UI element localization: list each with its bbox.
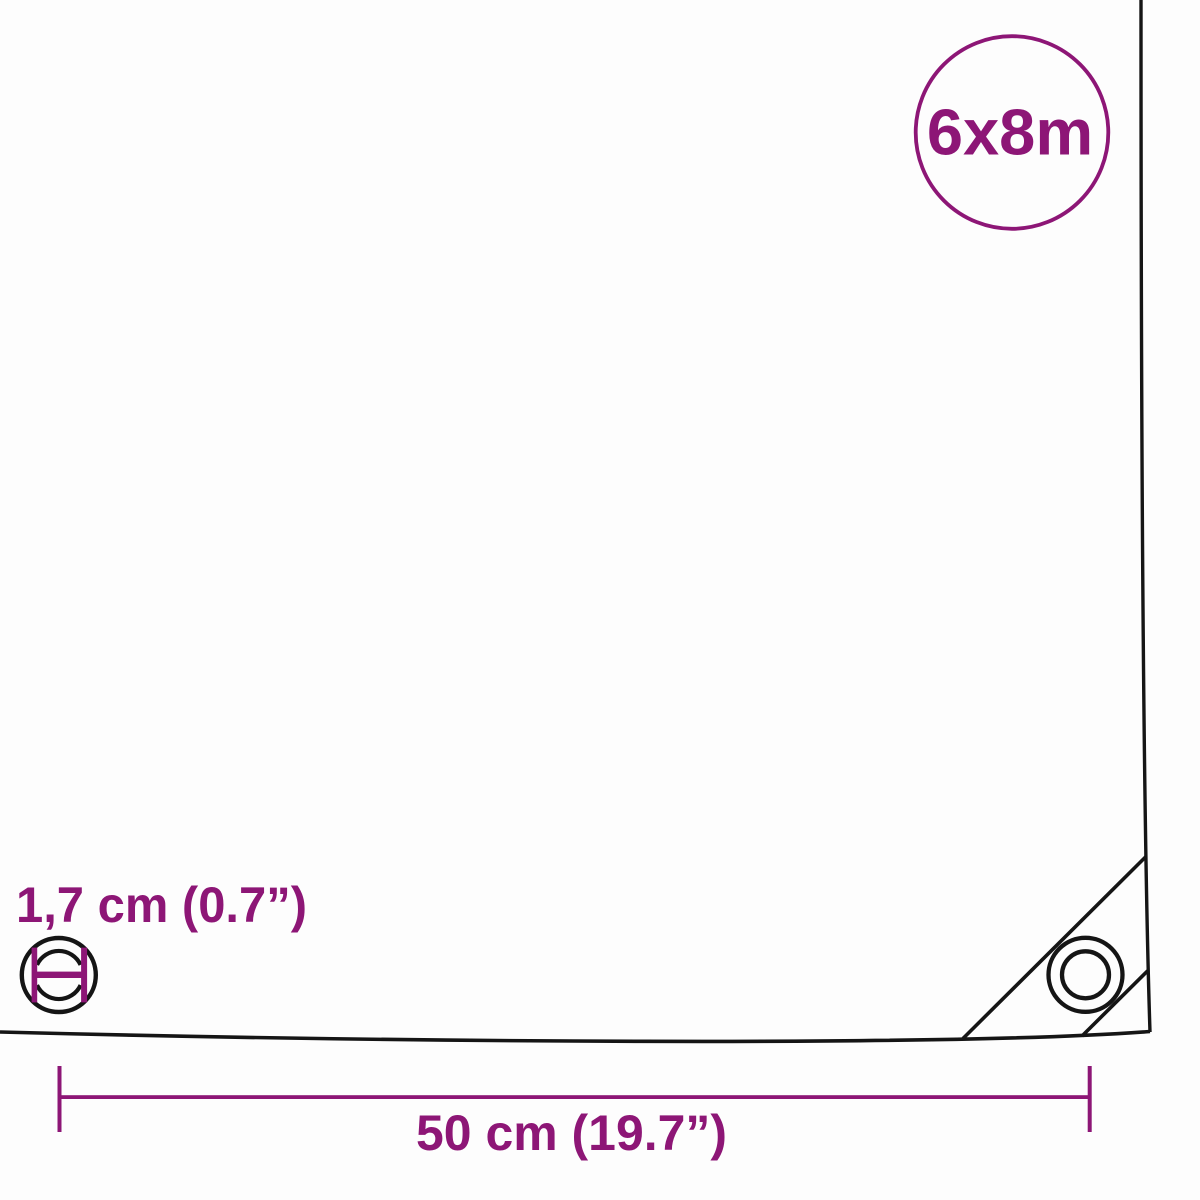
svg-text:50 cm (19.7”): 50 cm (19.7”)	[416, 1105, 727, 1161]
svg-text:6x8m: 6x8m	[927, 96, 1093, 169]
svg-text:1,7 cm (0.7”): 1,7 cm (0.7”)	[16, 877, 307, 933]
